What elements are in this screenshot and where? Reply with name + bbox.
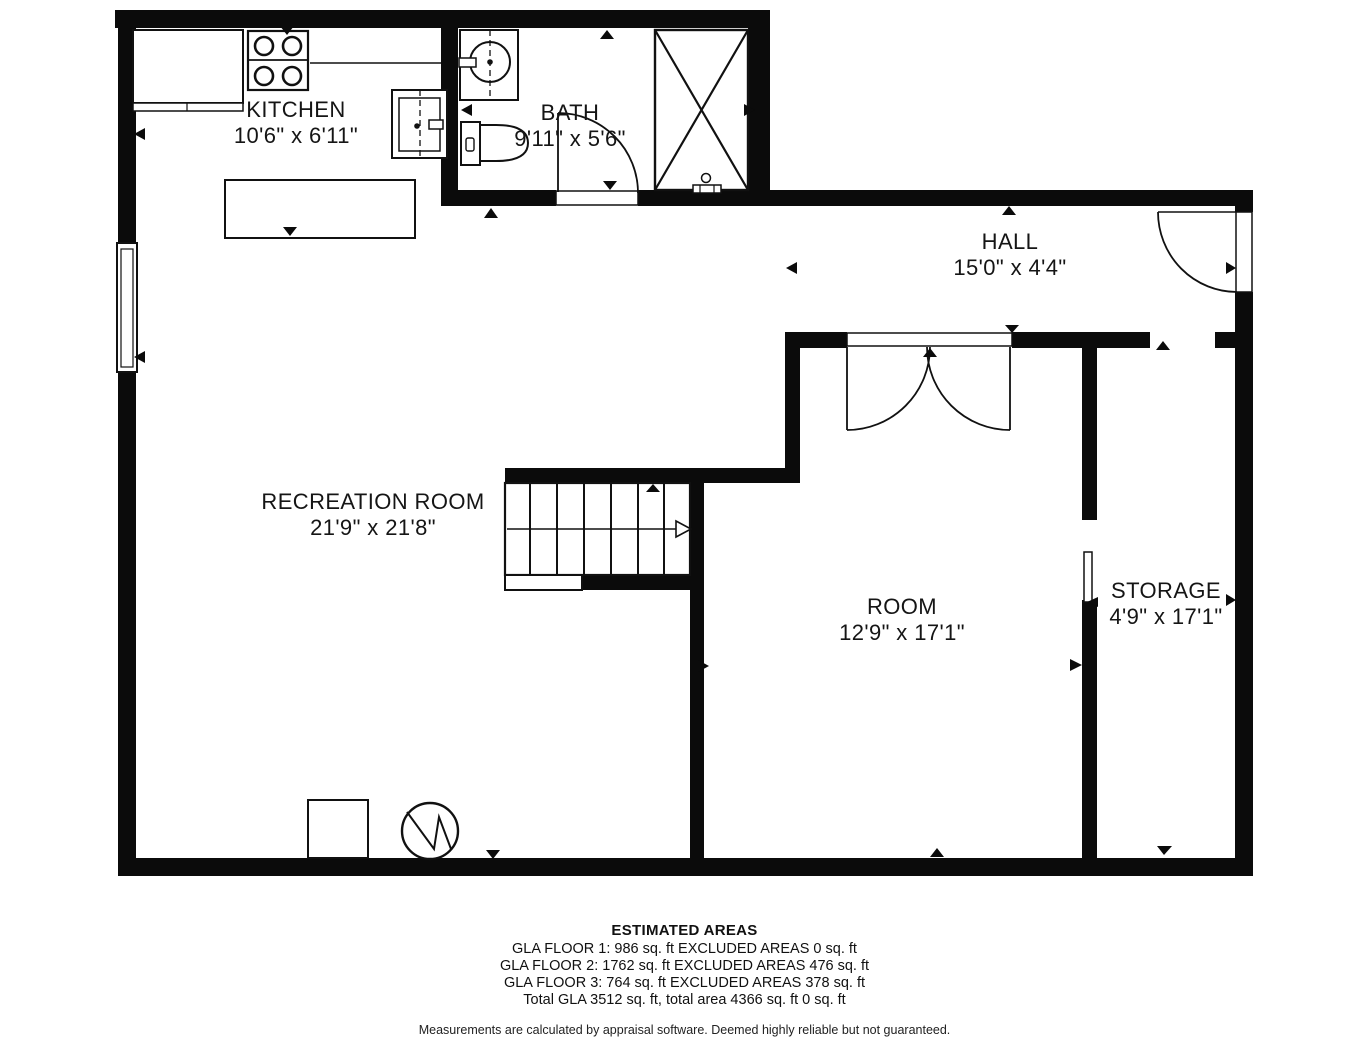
room-label-recreation-room: RECREATION ROOM 21'9" x 21'8": [261, 489, 484, 541]
kitchen-island: [225, 180, 415, 238]
room-name: KITCHEN: [234, 97, 358, 123]
furnace-icon: [402, 803, 458, 859]
estimated-areas-block: ESTIMATED AREAS GLA FLOOR 1: 986 sq. ft …: [0, 922, 1369, 1037]
room-dimensions: 15'0" x 4'4": [953, 255, 1066, 281]
room-dimensions: 12'9" x 17'1": [839, 620, 965, 646]
room-label-hall: HALL 15'0" x 4'4": [953, 229, 1066, 281]
water-heater: [308, 800, 368, 858]
gla-floor-3: GLA FLOOR 3: 764 sq. ft EXCLUDED AREAS 3…: [0, 975, 1369, 992]
window: [117, 243, 137, 372]
vanity-sink-icon: [459, 30, 518, 100]
gla-floor-2: GLA FLOOR 2: 1762 sq. ft EXCLUDED AREAS …: [0, 958, 1369, 975]
room-label-kitchen: KITCHEN 10'6" x 6'11": [234, 97, 358, 149]
estimated-areas-title: ESTIMATED AREAS: [0, 922, 1369, 939]
room-name: STORAGE: [1109, 578, 1222, 604]
kitchen-sink-icon: [392, 90, 447, 158]
disclaimer: Measurements are calculated by appraisal…: [0, 1023, 1369, 1037]
room-dimensions: 4'9" x 17'1": [1109, 604, 1222, 630]
room-dimensions: 21'9" x 21'8": [261, 515, 484, 541]
floor-plan: KITCHEN 10'6" x 6'11" BATH 9'11" x 5'6" …: [0, 0, 1369, 1039]
room-name: ROOM: [839, 594, 965, 620]
gla-floor-1: GLA FLOOR 1: 986 sq. ft EXCLUDED AREAS 0…: [0, 941, 1369, 958]
room-name: BATH: [514, 100, 626, 126]
storage-door: [1084, 552, 1098, 607]
gla-total: Total GLA 3512 sq. ft, total area 4366 s…: [0, 992, 1369, 1009]
french-doors: [847, 333, 1012, 430]
entry-door: [1158, 212, 1252, 292]
room-label-storage: STORAGE 4'9" x 17'1": [1109, 578, 1222, 630]
room-name: HALL: [953, 229, 1066, 255]
floor-plan-drawing: [0, 0, 1369, 1039]
room-label-bath: BATH 9'11" x 5'6": [514, 100, 626, 152]
stove-icon: [248, 31, 308, 90]
shower-icon: [655, 30, 748, 193]
room-dimensions: 10'6" x 6'11": [234, 123, 358, 149]
stairs: [505, 483, 691, 590]
room-dimensions: 9'11" x 5'6": [514, 126, 626, 152]
room-label-room: ROOM 12'9" x 17'1": [839, 594, 965, 646]
room-name: RECREATION ROOM: [261, 489, 484, 515]
